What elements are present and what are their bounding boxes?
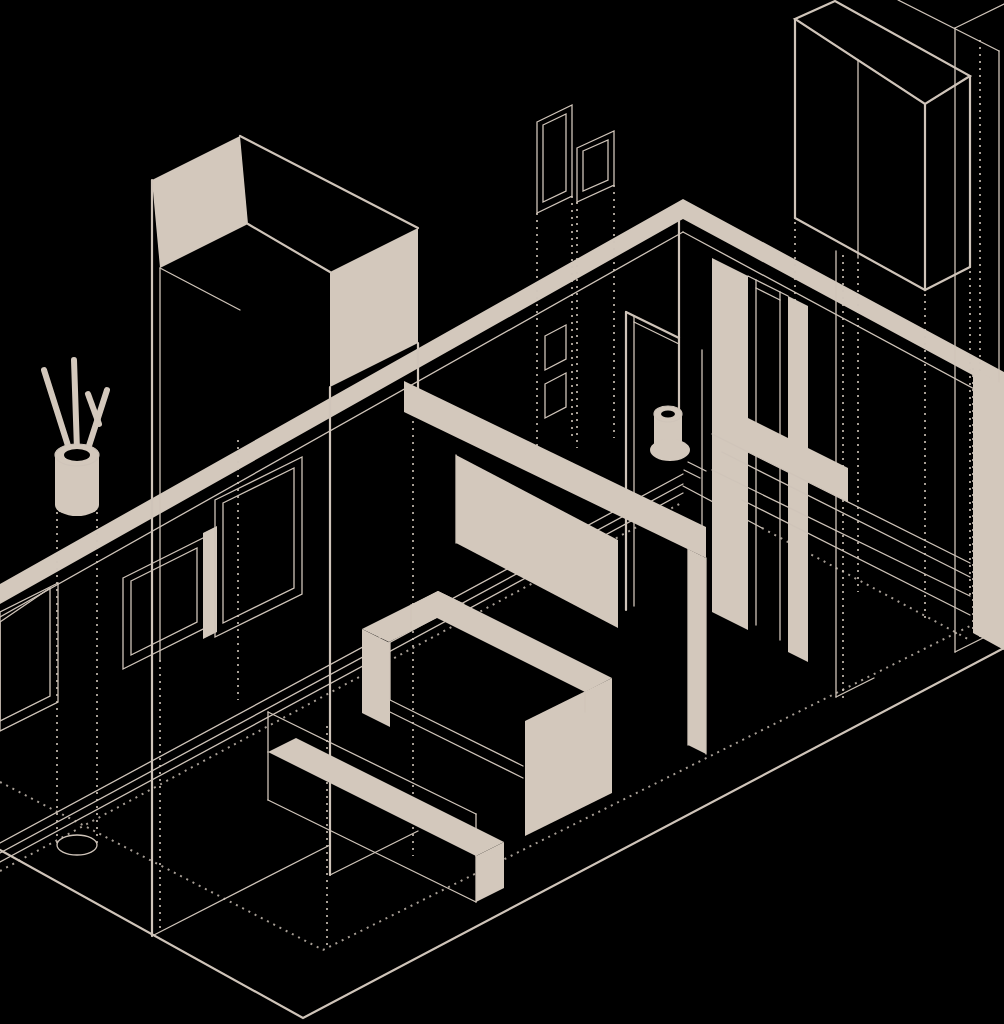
entry-wall-unit	[152, 136, 418, 936]
toilet	[650, 406, 706, 478]
illustration-canvas	[0, 0, 1004, 1024]
floor-vase	[44, 360, 107, 855]
bathroom-wall	[626, 258, 1004, 662]
coffee-table	[268, 712, 504, 902]
isometric-apartment-illustration	[0, 0, 1004, 1024]
